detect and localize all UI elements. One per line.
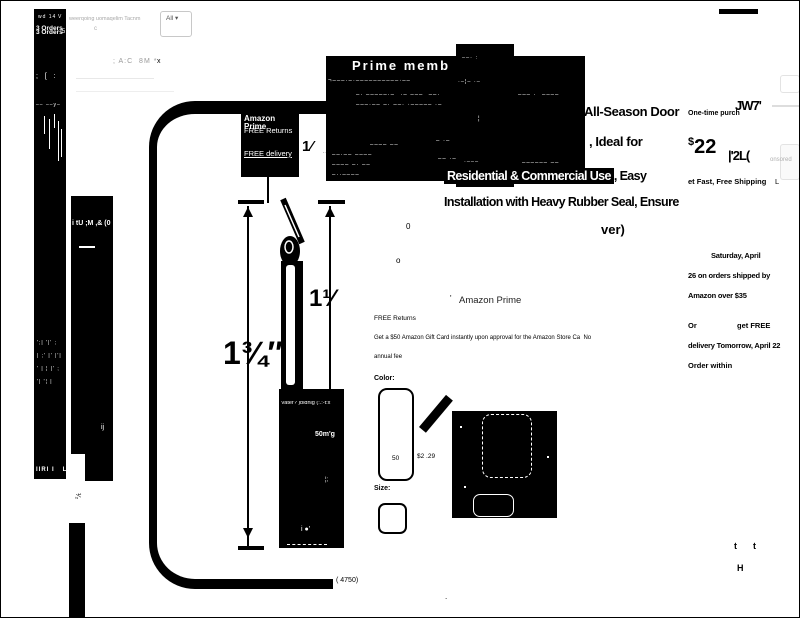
promo-dark-block: ––· : ·–¦– ·– ¦ ·––– –·– –– [456,44,514,187]
gift-card-offer-line2: annual fee [374,354,402,360]
arrow-down-icon [243,528,253,538]
footer-mark: t [734,542,737,551]
panel-garble: –– ––y– [36,103,61,108]
free-returns-link[interactable]: FREE Returns [244,127,292,135]
promo-garble: –··–––– [332,172,360,178]
leader-line [267,177,269,203]
image-dot [464,486,466,488]
dimension-cap [238,200,264,204]
footer-mark: H [737,564,744,573]
size-swatch[interactable] [378,503,407,534]
panel-garble: V [58,15,61,20]
product-image-box[interactable] [452,411,557,518]
panel-garble: IIRI I L [36,467,67,473]
arrow-up-icon [243,207,253,217]
price-value: 22 [694,136,716,158]
footer-mark: t [753,542,756,551]
dimension-label-top: 1⁄ [302,139,313,154]
door-seal-profile-drawing [275,191,307,391]
promo-garble: – ·– [436,138,450,144]
overlay-garble: i ●' [301,526,310,533]
image-outline-small [473,494,514,517]
promo-garble: –––·–– –· ––· ·––––– ·– [356,102,442,108]
panel-garble: ' 5 [57,29,66,35]
color-label: Color: [374,375,395,382]
block-garble: ¦ [478,116,481,122]
panel-garble: i tU ;M ,& (0 [72,220,111,227]
promo-garble: –· –––––·– ·– ––– ––· [356,92,440,98]
close-icon[interactable]: x [157,58,161,65]
search-sub-mark: c [94,26,97,32]
bottom-left-bar [69,523,85,618]
block-garble: ·––– [464,160,479,166]
get-free-link[interactable]: get FREE [737,322,770,330]
overlay-garble: ¦; [325,477,328,483]
order-within: Order within [688,362,732,370]
image-outline [482,414,532,478]
title-inverse-segment: Residential & Commercial Use [444,168,614,184]
shipping-mark: L [775,178,779,186]
dimension-cap [238,546,264,550]
promo-garble: ––·–– –––– [332,152,372,158]
stray-mark: o [396,257,400,265]
product-title-line: Residential & Commercial Use, Easy [444,170,646,183]
gift-card-offer[interactable]: Get a $50 Amazon Gift Card instantly upo… [374,335,591,341]
free-returns-label[interactable]: FREE Returns [374,316,416,323]
panel-garble: wd 14 [38,15,56,20]
promo-garble: –––– –– [370,142,399,148]
search-input[interactable] [67,11,166,27]
glitch-bar [719,9,758,14]
divider [76,78,154,79]
size-label: Size: [374,485,390,492]
product-title-line: , Ideal for [589,135,642,148]
color-swatch[interactable]: 50 [378,388,414,481]
search-all-dropdown[interactable]: All ▾ [160,11,192,37]
panel-garble: ; [ : [36,73,57,80]
overlay-garble: 50m'g [315,431,335,438]
sponsored-label: onsored [770,157,792,163]
delivery-line: Amazon over $35 [688,292,747,300]
dimension-line-left [247,206,249,546]
footer-dot: . [445,593,447,601]
arrow-up-icon [325,207,335,217]
amazon-product-page: c All ▾ ; A:C 8M * x onsored wd 14 V 3 O… [0,0,800,618]
shipping-note: et Fast, Free Shipping [688,178,766,186]
delivery-line: 26 on orders shipped by [688,272,770,280]
breadcrumb-garble: ; A:C 8M * [113,58,157,65]
dimension-label-left: 1¾″ [223,337,283,369]
delivery-tomorrow: delivery Tomorrow, April 22 [688,342,780,350]
dimension-cap [318,200,345,204]
price-garble: |'2L( [728,149,749,162]
product-title-line: All-Season Door [584,105,679,118]
block-garble: ·–¦– ·– [458,80,481,86]
product-title-line: Installation with Heavy Rubber Seal, Ens… [444,196,679,209]
swatch-value: 50 [392,456,399,463]
overlay-garble: Vater? )bldnig (:.:-t:x [281,401,342,407]
amazon-prime-label[interactable]: Amazon Prime [459,296,521,306]
product-thumbnail-strip[interactable] [419,395,453,433]
right-rail-box [780,75,800,93]
one-time-purchase-option[interactable]: One-time purch [688,110,740,117]
promo-garble: –––––– –– [522,160,559,166]
panel-dash [79,246,95,248]
panel-noise-row: ';| '|' ; [37,341,57,346]
left-secondary-panel: i tU ;M ,& (0 ij [71,196,113,481]
block-garble: ––· : [462,56,478,62]
stray-mark: 0 [406,223,410,231]
half-fraction-mark: ¹⁄₂ [74,493,81,499]
panel-notch [71,454,85,481]
left-nav-panel: wd 14 V 3 Orders ' 5 ; [ : –– ––y– ';| '… [34,9,66,479]
right-rail-dash [772,105,799,107]
image-dot [460,426,462,428]
promo-garble: ¬–––·–·––––––––––·–– [328,78,411,84]
prime-badge-box: Amazon Prime FREE Returns FREE delivery [241,113,299,177]
overlay-dash [287,544,327,545]
price: $22 [688,137,716,157]
product-title-line: ver) [601,223,625,236]
panel-garble: ij [101,424,104,431]
all-dropdown-label: All ▾ [166,16,178,23]
spec-overlay-box: Vater? )bldnig (:.:-t:x 50m'g ¦; i ●' [279,389,344,548]
review-count: ( 4750) [336,577,358,584]
delivery-or: Or [688,322,697,330]
title-segment: , Easy [614,169,647,183]
promo-garble: ––– · –––– [518,92,559,98]
image-dot [547,456,549,458]
prime-tick-mark: ' [450,295,452,303]
promo-headline: Prime memb [352,59,450,72]
panel-noise-row: '| '¦ | [37,380,53,385]
swatch-price: $2 .29 [417,454,435,461]
promo-garble: –––– –· –– [332,162,371,168]
panel-noise-row: | ;' |' |'| [37,354,62,359]
price-garble: JW7' [735,99,761,112]
dimension-label-right: 1¹⁄ [309,287,334,311]
divider [76,91,174,92]
free-delivery-link[interactable]: FREE delivery [244,150,292,158]
panel-noise-row: ' | ¦ |' ; [37,367,60,372]
delivery-date: Saturday, April [711,252,761,260]
